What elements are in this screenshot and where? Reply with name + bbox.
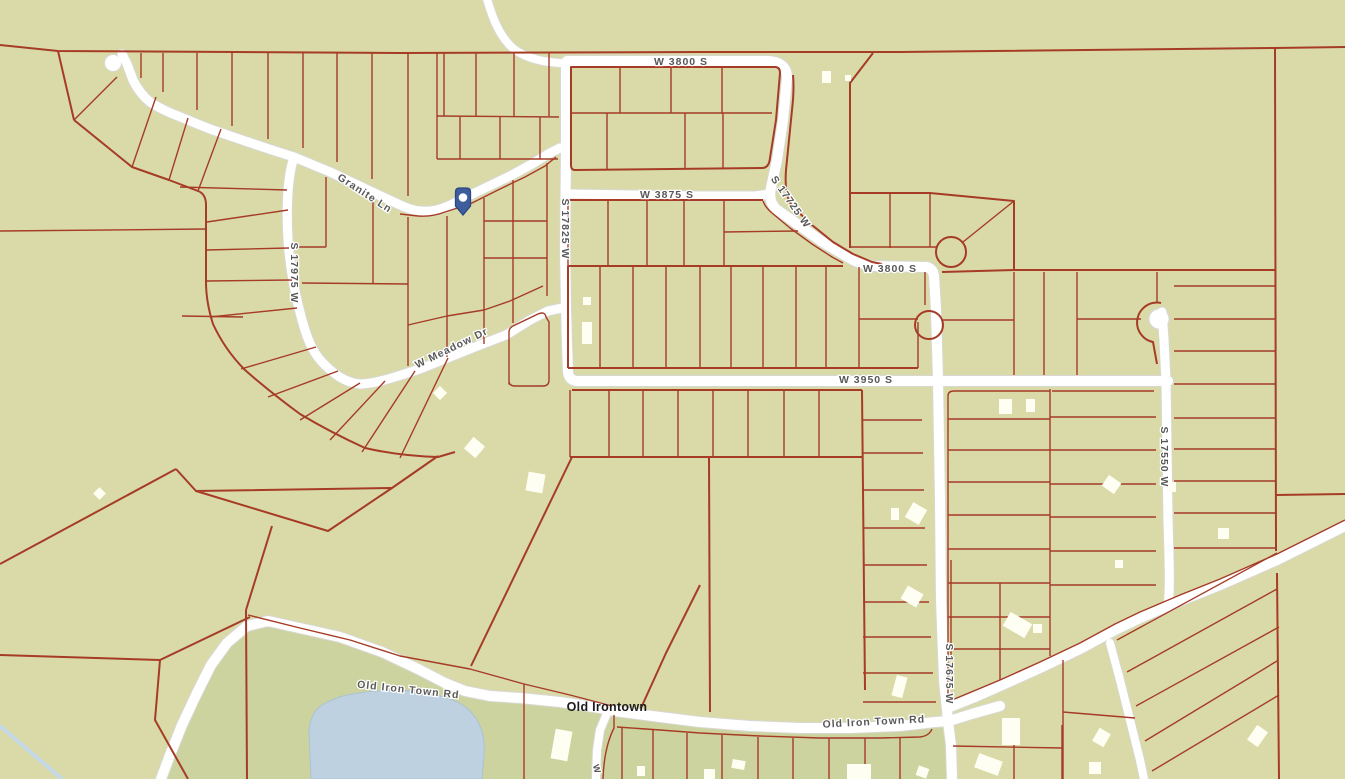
svg-text:S 17825 W: S 17825 W xyxy=(559,199,571,260)
svg-text:S 17675 W: S 17675 W xyxy=(943,644,955,705)
svg-text:W 3875 S: W 3875 S xyxy=(640,189,694,201)
svg-text:S 17975 W: S 17975 W xyxy=(288,243,300,304)
svg-text:W 3950 S: W 3950 S xyxy=(839,374,893,386)
svg-text:S 17550 W: S 17550 W xyxy=(1158,427,1170,488)
svg-text:W 3800 S: W 3800 S xyxy=(863,263,917,275)
svg-text:W 3800 S: W 3800 S xyxy=(654,56,708,68)
svg-text:Old Irontown: Old Irontown xyxy=(567,700,648,714)
